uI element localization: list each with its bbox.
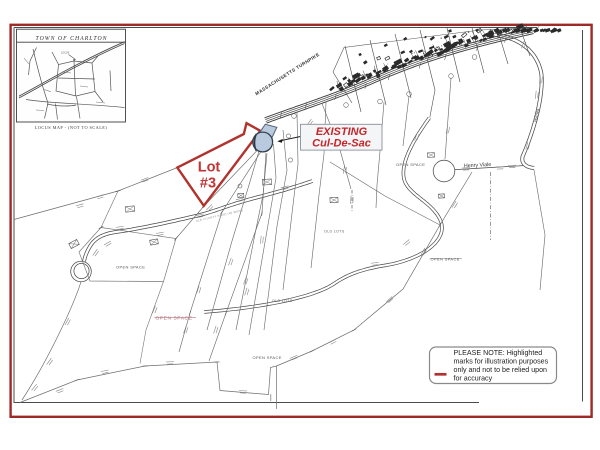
svg-text:OLD LOTS: OLD LOTS xyxy=(272,299,293,303)
svg-text:OPEN SPACE: OPEN SPACE xyxy=(396,162,425,167)
svg-text:TOWN OF CHARLTON: TOWN OF CHARLTON xyxy=(35,36,107,42)
svg-text:OPEN SPACE: OPEN SPACE xyxy=(156,316,193,322)
svg-text:Lot: Lot xyxy=(198,160,221,176)
svg-text:LOCUS: LOCUS xyxy=(61,52,70,55)
svg-text:marks for illustration purpose: marks for illustration purposes xyxy=(454,358,549,366)
svg-text:OPEN SPACE: OPEN SPACE xyxy=(116,265,145,270)
svg-text:Cul-De-Sac: Cul-De-Sac xyxy=(312,138,371,150)
svg-text:PLEASE NOTE: Highlighted: PLEASE NOTE: Highlighted xyxy=(454,349,543,357)
svg-text:EXISTING: EXISTING xyxy=(316,126,368,138)
svg-text:#3: #3 xyxy=(200,176,216,192)
svg-text:LOCUS MAP - (NOT TO SCALE): LOCUS MAP - (NOT TO SCALE) xyxy=(35,125,108,130)
svg-text:for accuracy: for accuracy xyxy=(454,375,493,383)
svg-text:only and not to be relied upon: only and not to be relied upon xyxy=(454,366,548,374)
svg-text:OPEN SPACE: OPEN SPACE xyxy=(253,355,282,360)
svg-text:OLD LOTS: OLD LOTS xyxy=(324,230,345,234)
